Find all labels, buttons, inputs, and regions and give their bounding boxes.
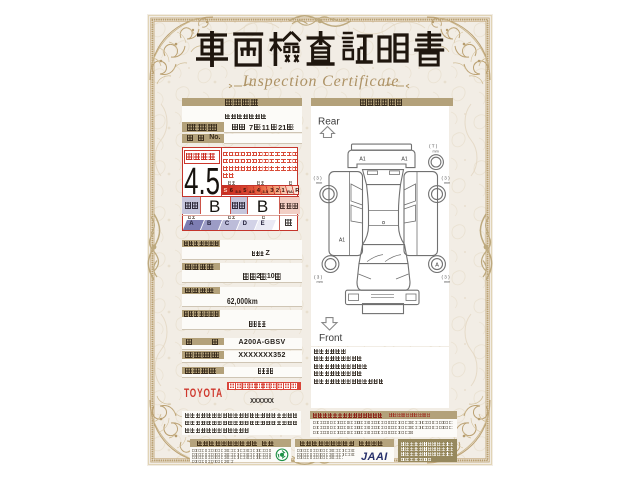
svg-text:( 3 ): ( 3 ) — [314, 275, 323, 280]
svg-text:A: A — [435, 263, 439, 269]
svg-text:( 3 ): ( 3 ) — [441, 176, 450, 181]
svg-text:mm: mm — [316, 181, 322, 185]
svg-text:A1: A1 — [338, 238, 344, 244]
svg-text:mm: mm — [432, 150, 438, 154]
svg-text:mm: mm — [316, 280, 322, 284]
svg-text:mm: mm — [444, 181, 450, 185]
svg-text:( T ): ( T ) — [429, 144, 438, 149]
svg-text:( 3 ): ( 3 ) — [441, 275, 450, 280]
svg-text:( 3 ): ( 3 ) — [313, 176, 322, 181]
svg-text:A1: A1 — [359, 157, 365, 163]
svg-text:A1: A1 — [401, 157, 407, 163]
svg-text:Rear: Rear — [318, 117, 340, 128]
svg-text:Front: Front — [319, 333, 343, 344]
svg-text:mm: mm — [444, 280, 450, 284]
